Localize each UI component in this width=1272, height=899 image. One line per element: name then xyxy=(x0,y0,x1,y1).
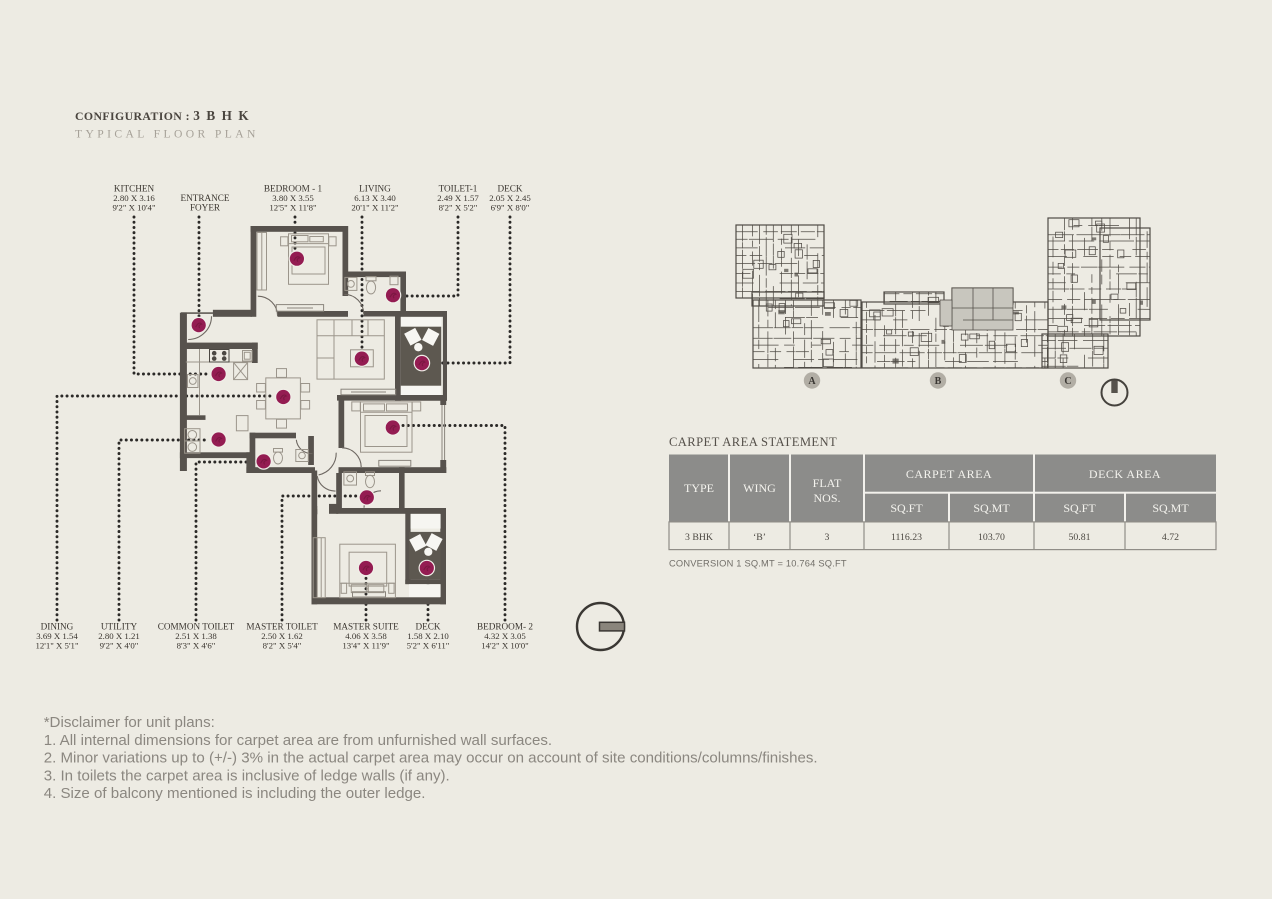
svg-text:4.06 X 3.58: 4.06 X 3.58 xyxy=(345,631,387,641)
svg-text:5'2" X 6'11": 5'2" X 6'11" xyxy=(407,641,450,651)
svg-text:CONVERSION 1 SQ.MT = 10.764 SQ: CONVERSION 1 SQ.MT = 10.764 SQ.FT xyxy=(669,559,847,569)
svg-text:UTILITY: UTILITY xyxy=(101,622,138,632)
svg-text:2. Minor variations up to (+/-: 2. Minor variations up to (+/-) 3% in th… xyxy=(44,750,818,767)
svg-text:KITCHEN: KITCHEN xyxy=(114,184,155,194)
svg-text:SQ.MT: SQ.MT xyxy=(973,501,1010,515)
svg-text:2.80 X 1.21: 2.80 X 1.21 xyxy=(98,631,140,641)
svg-text:TYPICAL FLOOR PLAN: TYPICAL FLOOR PLAN xyxy=(75,128,259,141)
svg-text:MASTER TOILET: MASTER TOILET xyxy=(246,622,318,632)
svg-text:8'2" X 5'4": 8'2" X 5'4" xyxy=(263,641,302,651)
svg-text:6'9" X 8'0": 6'9" X 8'0" xyxy=(491,203,530,213)
svg-text:ENTRANCE: ENTRANCE xyxy=(181,193,230,203)
svg-text:14'2" X 10'0": 14'2" X 10'0" xyxy=(481,641,529,651)
svg-text:BEDROOM- 2: BEDROOM- 2 xyxy=(477,622,533,632)
svg-text:‘B’: ‘B’ xyxy=(753,532,766,543)
svg-text:CONFIGURATION : 3 B H K: CONFIGURATION : 3 B H K xyxy=(75,108,250,123)
svg-text:COMMON TOILET: COMMON TOILET xyxy=(158,622,235,632)
svg-text:CARPET AREA STATEMENT: CARPET AREA STATEMENT xyxy=(669,435,837,449)
svg-text:TOILET-1: TOILET-1 xyxy=(439,184,478,194)
svg-text:20'1" X 11'2": 20'1" X 11'2" xyxy=(351,203,399,213)
svg-text:12'5" X 11'8": 12'5" X 11'8" xyxy=(269,203,317,213)
svg-text:1. All internal dimensions for: 1. All internal dimensions for carpet ar… xyxy=(44,732,552,749)
svg-text:TYPE: TYPE xyxy=(684,481,714,495)
svg-text:3 BHK: 3 BHK xyxy=(685,532,713,543)
svg-text:BEDROOM - 1: BEDROOM - 1 xyxy=(264,184,323,194)
svg-text:13'4" X 11'9": 13'4" X 11'9" xyxy=(342,641,390,651)
svg-text:MASTER SUITE: MASTER SUITE xyxy=(333,622,399,632)
svg-text:NOS.: NOS. xyxy=(813,491,840,505)
svg-text:4. Size of balcony mentioned i: 4. Size of balcony mentioned is includin… xyxy=(44,785,426,802)
svg-text:2.05 X 2.45: 2.05 X 2.45 xyxy=(489,193,531,203)
svg-text:LIVING: LIVING xyxy=(359,184,391,194)
svg-text:12'1" X 5'1": 12'1" X 5'1" xyxy=(35,641,79,651)
svg-text:50.81: 50.81 xyxy=(1068,532,1090,543)
svg-text:9'2" X 4'0": 9'2" X 4'0" xyxy=(100,641,139,651)
svg-text:2.80 X 3.16: 2.80 X 3.16 xyxy=(113,193,155,203)
svg-text:*Disclaimer for unit plans:: *Disclaimer for unit plans: xyxy=(44,714,215,731)
svg-text:SQ.FT: SQ.FT xyxy=(1063,501,1096,515)
svg-text:WING: WING xyxy=(743,481,776,495)
svg-text:DECK: DECK xyxy=(415,622,440,632)
svg-text:SQ.FT: SQ.FT xyxy=(890,501,923,515)
svg-text:3: 3 xyxy=(825,532,830,543)
svg-text:FLAT: FLAT xyxy=(813,476,842,490)
svg-text:DINING: DINING xyxy=(41,622,74,632)
svg-text:3. In toilets the carpet area: 3. In toilets the carpet area is inclusi… xyxy=(44,767,450,784)
svg-text:SQ.MT: SQ.MT xyxy=(1152,501,1189,515)
svg-text:FOYER: FOYER xyxy=(190,203,221,213)
svg-text:9'2" X 10'4": 9'2" X 10'4" xyxy=(112,203,156,213)
svg-text:8'2" X 5'2": 8'2" X 5'2" xyxy=(439,203,478,213)
svg-text:4.32 X 3.05: 4.32 X 3.05 xyxy=(484,631,526,641)
svg-text:103.70: 103.70 xyxy=(978,532,1005,543)
svg-text:2.51 X 1.38: 2.51 X 1.38 xyxy=(175,631,217,641)
svg-text:1116.23: 1116.23 xyxy=(891,532,922,543)
svg-text:2.49 X 1.57: 2.49 X 1.57 xyxy=(437,193,479,203)
svg-text:C: C xyxy=(1064,376,1071,387)
svg-text:DECK: DECK xyxy=(497,184,522,194)
svg-text:2.50 X 1.62: 2.50 X 1.62 xyxy=(261,631,303,641)
svg-text:A: A xyxy=(808,376,816,387)
svg-text:4.72: 4.72 xyxy=(1162,532,1179,543)
svg-text:1.58 X 2.10: 1.58 X 2.10 xyxy=(407,631,449,641)
svg-text:3.69 X 1.54: 3.69 X 1.54 xyxy=(36,631,78,641)
svg-text:6.13 X 3.40: 6.13 X 3.40 xyxy=(354,193,396,203)
svg-text:DECK AREA: DECK AREA xyxy=(1089,467,1161,481)
svg-text:CARPET AREA: CARPET AREA xyxy=(906,467,992,481)
svg-text:8'3" X 4'6": 8'3" X 4'6" xyxy=(177,641,216,651)
svg-text:B: B xyxy=(935,376,942,387)
svg-text:3.80 X 3.55: 3.80 X 3.55 xyxy=(272,193,314,203)
